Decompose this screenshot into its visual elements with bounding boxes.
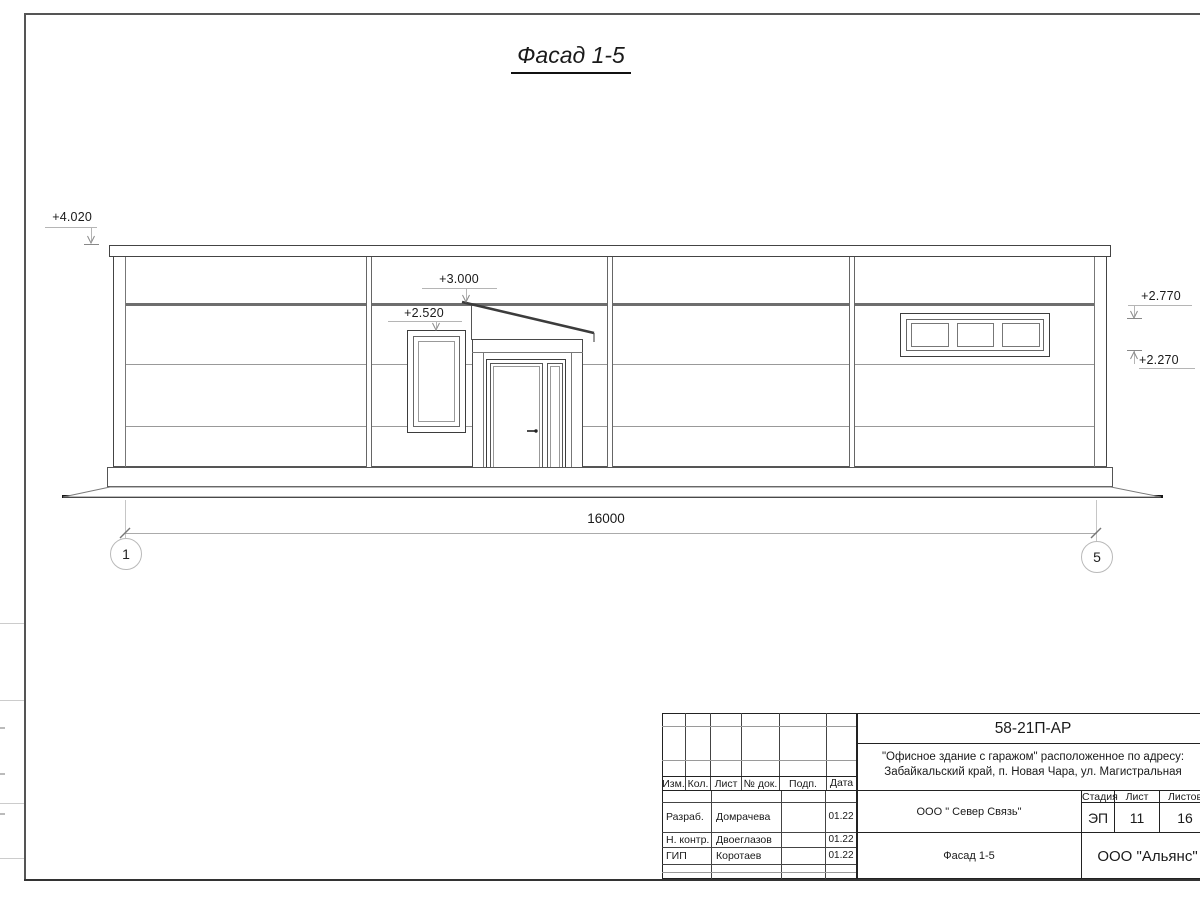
tb-sheets-label: Листов	[1160, 791, 1200, 803]
tb-line	[856, 832, 1200, 833]
tb-stage-label: Стадия	[1082, 791, 1114, 803]
tb-line	[856, 743, 1200, 744]
tb-name: Коротаев	[716, 850, 761, 862]
blind-area	[63, 487, 1161, 497]
elevation-arrow-icon	[433, 323, 440, 330]
tb-line	[662, 726, 856, 727]
tb-line	[781, 790, 782, 879]
tb-sheet-name: Фасад 1-5	[858, 850, 1080, 862]
elevation-arrow-icon	[1131, 352, 1138, 359]
tb-col-list: Лист	[711, 778, 741, 790]
elevation-arrow-icon	[463, 295, 470, 302]
tb-name: Двоеглазов	[716, 834, 772, 846]
tb-date: 01.22	[826, 811, 856, 822]
canopy	[462, 302, 594, 333]
tb-col-podp: Подп.	[780, 778, 826, 790]
tb-role: ГИП	[666, 850, 687, 862]
tb-line	[662, 847, 856, 848]
tb-contractor: ООО "Альянс"	[1085, 848, 1200, 865]
drawing-sheet: Фасад 1-5 +4.020 +3.000 +2.520	[0, 0, 1200, 900]
tb-line	[662, 760, 856, 761]
elevation-arrow-icon	[88, 236, 95, 243]
tb-line	[662, 864, 856, 865]
tb-stage-value: ЭП	[1082, 810, 1114, 826]
tb-date: 01.22	[826, 850, 856, 861]
tb-role: Разраб.	[666, 811, 704, 823]
tb-col-ndok: № док.	[742, 778, 779, 790]
dimension-tick-icon	[120, 528, 130, 538]
elevation-arrow-icon	[1131, 311, 1138, 318]
tb-line	[711, 790, 712, 879]
tb-sheets-value: 16	[1160, 810, 1200, 826]
tb-project-line2: Забайкальский край, п. Новая Чара, ул. М…	[858, 766, 1200, 778]
tb-date: 01.22	[826, 834, 856, 845]
tb-col-izm: Изм.	[662, 778, 685, 790]
tb-line	[662, 832, 856, 833]
dimension-tick-icon	[1091, 528, 1101, 538]
tb-company: ООО " Север Связь"	[858, 806, 1080, 818]
door-handle-icon	[534, 429, 537, 432]
tb-line	[662, 802, 856, 803]
tb-col-data: Дата	[827, 777, 856, 789]
tb-col-kol: Кол.	[686, 778, 710, 790]
tb-sheet-value: 11	[1115, 810, 1159, 826]
tb-line	[662, 872, 856, 873]
tb-line	[1081, 790, 1082, 879]
tb-sheet-label: Лист	[1115, 791, 1159, 803]
tb-name: Домрачева	[716, 811, 770, 823]
tb-doc-code: 58-21П-АР	[856, 720, 1200, 738]
tb-project-line1: "Офисное здание с гаражом" расположенное…	[858, 751, 1200, 763]
tb-role: Н. контр.	[666, 834, 709, 846]
